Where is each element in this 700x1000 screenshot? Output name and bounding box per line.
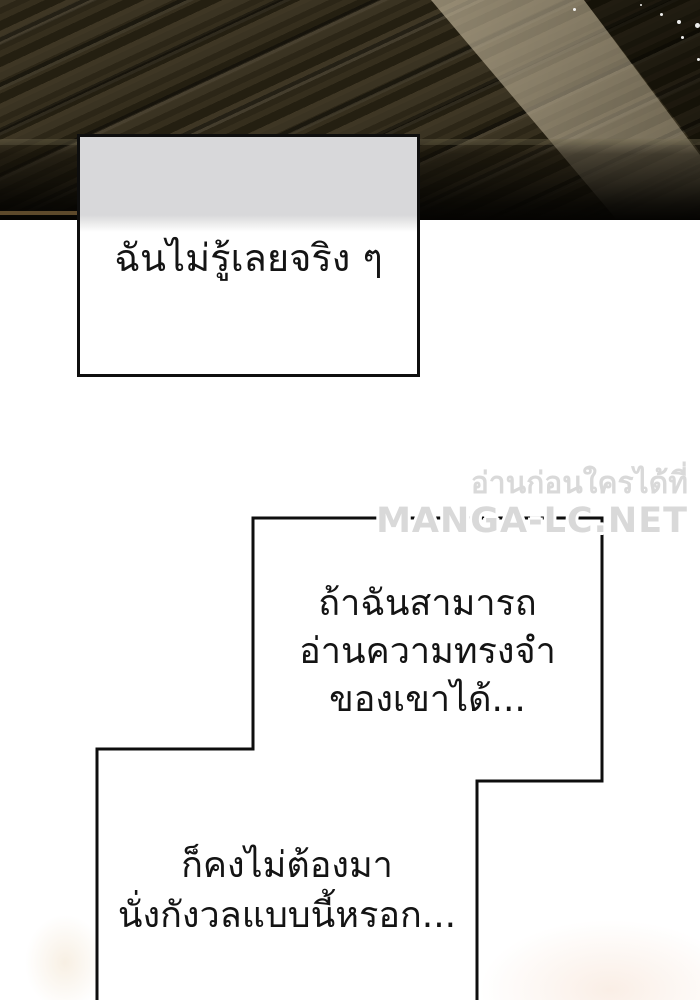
narration-line: นั่งกังวลแบบนี้หรอก... [97,891,477,941]
manga-page: ฉันไม่รู้เลยจริง ๆ อ่านก่อนใครได้ที่ MAN… [0,0,700,1000]
narration-line: ถ้าฉันสามารถ [253,580,602,628]
narration-text-lower: ก็คงไม่ต้องมา นั่งกังวลแบบนี้หรอก... [97,841,477,941]
narration-line: อ่านความทรงจำ [253,628,602,676]
narration-line: ของเขาได้... [253,676,602,724]
site-watermark: อ่านก่อนใครได้ที่ MANGA-LC.NET [376,464,688,538]
narration-text-upper: ถ้าฉันสามารถ อ่านความทรงจำ ของเขาได้... [253,580,602,724]
speech-box: ฉันไม่รู้เลยจริง ๆ [77,134,420,377]
speech-text: ฉันไม่รู้เลยจริง ๆ [80,235,417,281]
watermark-site-name: MANGA-LC.NET [376,504,688,538]
watermark-thai-line: อ่านก่อนใครได้ที่ [376,464,688,504]
narration-line: ก็คงไม่ต้องมา [97,841,477,891]
